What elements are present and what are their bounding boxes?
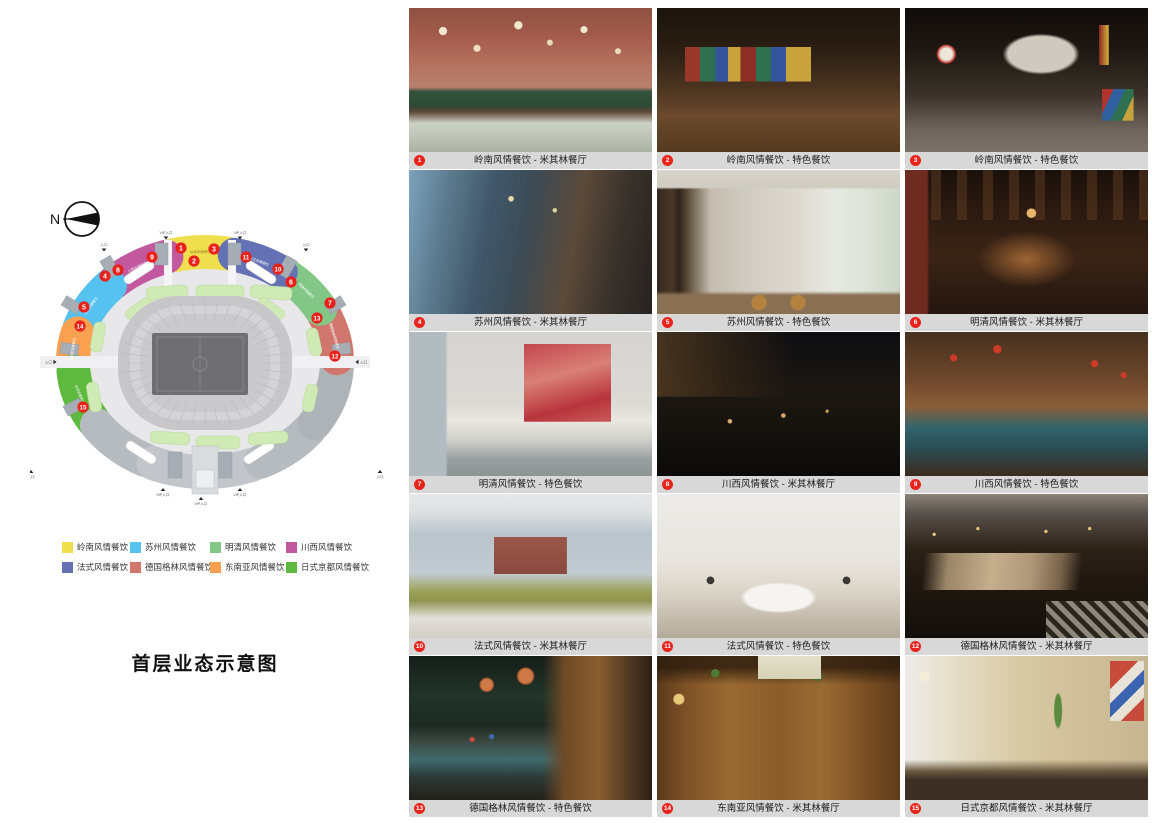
map-marker: 15 [77, 401, 88, 412]
entrance-label: 入口 [100, 242, 108, 247]
photo-caption-text: 川西风情餐饮 - 米其林餐厅 [722, 476, 835, 493]
legend-label: 东南亚风情餐饮 [225, 561, 285, 573]
map-marker: 9 [146, 251, 157, 262]
entrance-arrow-icon [378, 470, 383, 473]
entrance-label: VIP入口 [157, 492, 170, 497]
restaurant-photo [409, 8, 652, 152]
marker-number: 9 [150, 254, 154, 261]
core-block [218, 452, 232, 478]
entrance-arrow-icon [304, 249, 309, 252]
photo-caption: 2岭南风情餐饮 - 特色餐饮 [657, 152, 900, 169]
photo-number-badge: 10 [414, 641, 425, 652]
restaurant-photo [905, 170, 1148, 314]
map-marker: 2 [188, 255, 199, 266]
entrance-arrow-icon [199, 497, 204, 500]
legend-item: 岭南风情餐饮 [62, 537, 130, 557]
photo-caption-text: 明清风情餐饮 - 米其林餐厅 [970, 314, 1083, 331]
restaurant-photo [905, 494, 1148, 638]
photo-caption: 8川西风情餐饮 - 米其林餐厅 [657, 476, 900, 493]
photo-caption: 13德国格林风情餐饮 - 特色餐饮 [409, 800, 652, 817]
map-marker: 10 [272, 263, 283, 274]
entrance-marker: 入口 [100, 242, 108, 252]
map-marker: 7 [324, 297, 335, 308]
entrance-label: VIP入口 [195, 501, 208, 506]
photo-caption: 15日式京都风情餐饮 - 米其林餐厅 [905, 800, 1148, 817]
entrance-marker: 入口 [302, 242, 310, 252]
photo-number-badge: 1 [414, 155, 425, 166]
legend-label: 日式京都风情餐饮 [301, 561, 369, 573]
marker-number: 10 [275, 266, 282, 273]
gallery-item: 5苏州风情餐饮 - 特色餐饮 [657, 170, 900, 331]
restaurant-photo [657, 494, 900, 638]
gallery-item: 9川西风情餐饮 - 特色餐饮 [905, 332, 1148, 493]
entrance-marker: VIP入口 [195, 497, 208, 506]
photo-caption-text: 苏州风情餐饮 - 米其林餐厅 [474, 314, 587, 331]
page-title: 首层业态示意图 [70, 649, 340, 676]
map-marker: 8 [112, 264, 123, 275]
legend-swatch [210, 562, 221, 573]
legend-swatch [210, 542, 221, 553]
section-label: 岭南风情餐饮 [190, 249, 211, 255]
restaurant-photo [409, 170, 652, 314]
gallery-item: 12德国格林风情餐饮 - 米其林餐厅 [905, 494, 1148, 655]
restaurant-photo [905, 332, 1148, 476]
legend-swatch [130, 542, 141, 553]
map-marker: 11 [240, 251, 251, 262]
gallery-item: 4苏州风情餐饮 - 米其林餐厅 [409, 170, 652, 331]
legend-label: 苏州风情餐饮 [145, 541, 196, 553]
marker-number: 7 [328, 300, 332, 307]
entrance-label: VIP入口 [234, 230, 247, 235]
photo-caption-text: 岭南风情餐饮 - 特色餐饮 [975, 152, 1078, 169]
entrance-label: 入口 [30, 474, 35, 479]
core-block [228, 243, 241, 265]
entrance-arrow-icon [102, 249, 107, 252]
photo-number-badge: 5 [662, 317, 673, 328]
legend-item: 法式风情餐饮 [62, 557, 130, 577]
marker-number: 3 [212, 246, 216, 253]
entrance-label: 入口 [376, 474, 384, 479]
gallery-item: 7明清风情餐饮 - 特色餐饮 [409, 332, 652, 493]
pavilion-block [150, 431, 191, 446]
stadium-map: 岭南风情餐饮川西风情餐饮苏州风情餐饮东南亚风情餐饮日式京都风情餐饮德国格林风情餐… [30, 195, 400, 510]
core-block [155, 243, 168, 265]
gallery-item: 2岭南风情餐饮 - 特色餐饮 [657, 8, 900, 169]
legend-label: 德国格林风情餐饮 [145, 561, 213, 573]
photo-number-badge: 3 [910, 155, 921, 166]
photo-caption-text: 岭南风情餐饮 - 特色餐饮 [727, 152, 830, 169]
marker-number: 12 [332, 353, 339, 360]
gallery-item: 14东南亚风情餐饮 - 米其林餐厅 [657, 656, 900, 817]
photo-caption: 6明清风情餐饮 - 米其林餐厅 [905, 314, 1148, 331]
entrance-marker: VIP入口 [234, 488, 247, 497]
map-marker: 4 [99, 270, 110, 281]
photo-caption: 7明清风情餐饮 - 特色餐饮 [409, 476, 652, 493]
map-marker: 12 [329, 350, 340, 361]
photo-number-badge: 11 [662, 641, 673, 652]
gallery-item: 3岭南风情餐饮 - 特色餐饮 [905, 8, 1148, 169]
legend-label: 明清风情餐饮 [225, 541, 276, 553]
legend-label: 川西风情餐饮 [301, 541, 352, 553]
photo-number-badge: 14 [662, 803, 673, 814]
marker-number: 1 [179, 245, 183, 252]
entrance-label: 入口 [302, 242, 310, 247]
restaurant-photo [657, 656, 900, 800]
entrance-marker: 入口 [376, 470, 384, 479]
marker-number: 15 [80, 404, 87, 411]
entrance-arrow-icon [161, 488, 166, 491]
gallery-item: 6明清风情餐饮 - 米其林餐厅 [905, 170, 1148, 331]
presentation-board: N 岭南风情餐饮川西风情餐饮苏州风情餐饮东南亚风情餐饮日式京都风情餐饮德国格林风… [0, 0, 1152, 823]
photo-caption: 10法式风情餐饮 - 米其林餐厅 [409, 638, 652, 655]
map-marker: 6 [285, 276, 296, 287]
restaurant-photo [905, 656, 1148, 800]
gallery-item: 15日式京都风情餐饮 - 米其林餐厅 [905, 656, 1148, 817]
photo-caption-text: 法式风情餐饮 - 特色餐饮 [727, 638, 830, 655]
marker-number: 4 [103, 273, 107, 280]
legend-item: 东南亚风情餐饮 [210, 557, 286, 577]
map-marker: 3 [208, 243, 219, 254]
map-marker: 13 [311, 312, 322, 323]
restaurant-gallery: 1岭南风情餐饮 - 米其林餐厅2岭南风情餐饮 - 特色餐饮3岭南风情餐饮 - 特… [409, 8, 1148, 817]
gallery-item: 11法式风情餐饮 - 特色餐饮 [657, 494, 900, 655]
pavilion-block [248, 431, 289, 446]
legend-item: 德国格林风情餐饮 [130, 557, 210, 577]
restaurant-photo [657, 170, 900, 314]
legend-label: 岭南风情餐饮 [77, 541, 128, 553]
marker-number: 5 [82, 304, 86, 311]
marker-number: 2 [192, 258, 196, 265]
photo-caption: 9川西风情餐饮 - 特色餐饮 [905, 476, 1148, 493]
photo-number-badge: 15 [910, 803, 921, 814]
entrance-label: 入口 [45, 359, 53, 364]
entrance-marker: 入口 [30, 470, 35, 479]
entrance-label: VIP入口 [160, 230, 173, 235]
photo-number-badge: 9 [910, 479, 921, 490]
photo-caption-text: 川西风情餐饮 - 特色餐饮 [975, 476, 1078, 493]
photo-caption: 11法式风情餐饮 - 特色餐饮 [657, 638, 900, 655]
legend-item: 苏州风情餐饮 [130, 537, 210, 557]
restaurant-photo [409, 332, 652, 476]
photo-number-badge: 2 [662, 155, 673, 166]
photo-caption: 3岭南风情餐饮 - 特色餐饮 [905, 152, 1148, 169]
gallery-item: 1岭南风情餐饮 - 米其林餐厅 [409, 8, 652, 169]
photo-caption: 5苏州风情餐饮 - 特色餐饮 [657, 314, 900, 331]
restaurant-photo [409, 494, 652, 638]
entrance-label: 入口 [360, 359, 368, 364]
photo-caption-text: 东南亚风情餐饮 - 米其林餐厅 [717, 800, 839, 817]
photo-caption-text: 德国格林风情餐饮 - 特色餐饮 [469, 800, 591, 817]
walkway [40, 356, 120, 368]
legend-item: 明清风情餐饮 [210, 537, 286, 557]
photo-number-badge: 12 [910, 641, 921, 652]
legend-label: 法式风情餐饮 [77, 561, 128, 573]
restaurant-photo [409, 656, 652, 800]
photo-caption: 12德国格林风情餐饮 - 米其林餐厅 [905, 638, 1148, 655]
entrance-marker: VIP入口 [157, 488, 170, 497]
pavilion-block [250, 285, 293, 301]
marker-number: 11 [243, 254, 250, 261]
entrance-arrow-icon [30, 470, 33, 473]
entrance-marker: VIP入口 [160, 230, 173, 240]
photo-number-badge: 4 [414, 317, 425, 328]
map-legend: 岭南风情餐饮苏州风情餐饮明清风情餐饮川西风情餐饮法式风情餐饮德国格林风情餐饮东南… [62, 537, 372, 577]
map-marker: 1 [175, 242, 186, 253]
photo-number-badge: 7 [414, 479, 425, 490]
photo-caption-text: 明清风情餐饮 - 特色餐饮 [479, 476, 582, 493]
entrance-block [196, 470, 214, 488]
photo-caption-text: 日式京都风情餐饮 - 米其林餐厅 [961, 800, 1093, 817]
legend-swatch [130, 562, 141, 573]
entrance-arrow-icon [238, 488, 243, 491]
restaurant-photo [657, 332, 900, 476]
legend-swatch [62, 542, 73, 553]
legend-swatch [286, 542, 297, 553]
photo-number-badge: 13 [414, 803, 425, 814]
map-marker: 5 [78, 301, 89, 312]
photo-caption-text: 法式风情餐饮 - 米其林餐厅 [474, 638, 587, 655]
legend-swatch [62, 562, 73, 573]
restaurant-photo [905, 8, 1148, 152]
gallery-item: 10法式风情餐饮 - 米其林餐厅 [409, 494, 652, 655]
photo-number-badge: 6 [910, 317, 921, 328]
photo-caption-text: 岭南风情餐饮 - 米其林餐厅 [474, 152, 587, 169]
gallery-item: 13德国格林风情餐饮 - 特色餐饮 [409, 656, 652, 817]
marker-number: 8 [116, 267, 120, 274]
core-block [168, 452, 182, 478]
marker-number: 6 [289, 279, 293, 286]
photo-caption: 14东南亚风情餐饮 - 米其林餐厅 [657, 800, 900, 817]
photo-caption: 4苏州风情餐饮 - 米其林餐厅 [409, 314, 652, 331]
map-marker: 14 [74, 320, 85, 331]
photo-caption: 1岭南风情餐饮 - 米其林餐厅 [409, 152, 652, 169]
photo-caption-text: 德国格林风情餐饮 - 米其林餐厅 [961, 638, 1093, 655]
photo-number-badge: 8 [662, 479, 673, 490]
legend-item: 川西风情餐饮 [286, 537, 372, 557]
entrance-label: VIP入口 [234, 492, 247, 497]
legend-swatch [286, 562, 297, 573]
restaurant-photo [657, 8, 900, 152]
gallery-item: 8川西风情餐饮 - 米其林餐厅 [657, 332, 900, 493]
marker-number: 13 [314, 315, 321, 322]
legend-item: 日式京都风情餐饮 [286, 557, 372, 577]
entrance-arrow-icon [164, 237, 169, 240]
photo-caption-text: 苏州风情餐饮 - 特色餐饮 [727, 314, 830, 331]
marker-number: 14 [77, 323, 84, 330]
